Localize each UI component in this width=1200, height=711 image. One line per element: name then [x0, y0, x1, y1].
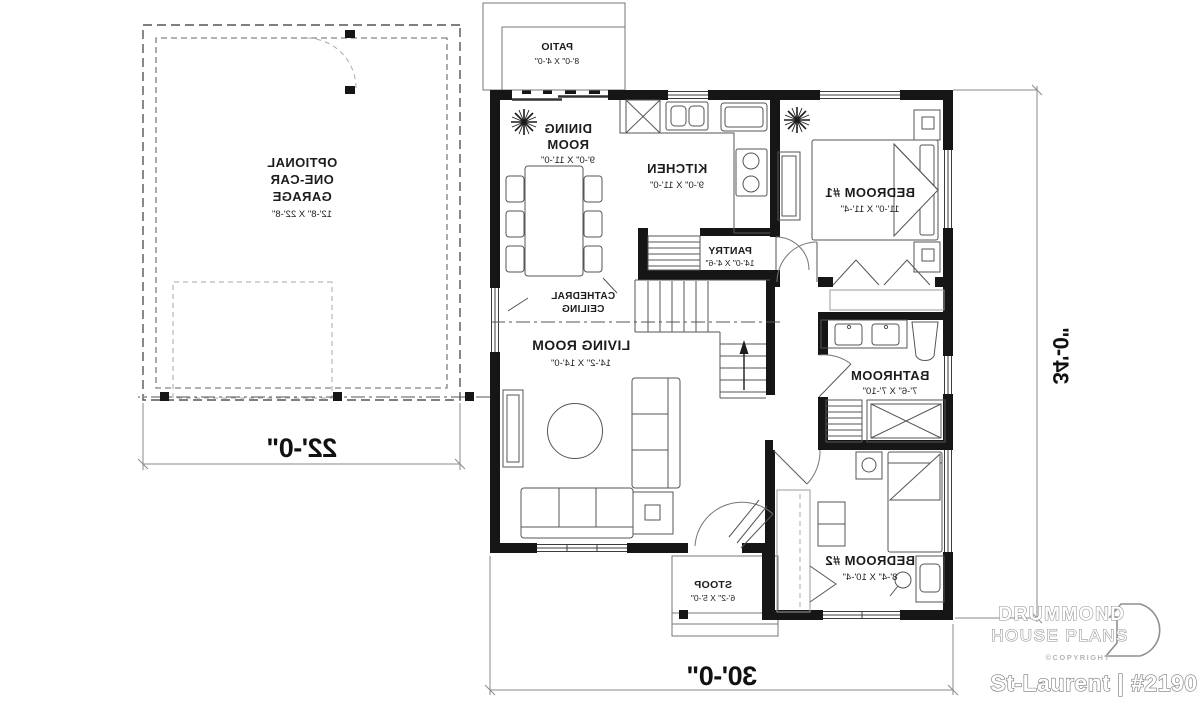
floor-plan-mirrored-group: PATIO 8'-0" X 4'-0" DINING ROOM 9'-0" X …	[138, 3, 1073, 695]
window	[945, 450, 952, 552]
plant-icon	[784, 107, 810, 133]
dining-chair	[584, 211, 602, 237]
plant-icon	[511, 109, 537, 135]
bedroom2-dims: 8'-4" X 10'-4"	[843, 572, 898, 583]
front-entry-door	[695, 502, 773, 548]
bedroom1-door	[777, 242, 817, 282]
nightstand	[914, 110, 940, 140]
patio-label: PATIO	[541, 41, 573, 53]
bed-2	[888, 452, 942, 552]
dresser	[778, 152, 800, 220]
cathedral-note-line2: CEILING	[562, 304, 605, 315]
bedroom2-door	[774, 450, 820, 484]
bathroom-dims: 7'-6" X 7'-10"	[863, 386, 918, 397]
dining-chair	[506, 246, 524, 272]
garage-label-line3: GARAGE	[272, 189, 331, 204]
floor-plan-sheet: PATIO 8'-0" X 4'-0" DINING ROOM 9'-0" X …	[0, 0, 1200, 711]
bathroom-vanity	[821, 320, 907, 348]
stairs	[635, 280, 770, 398]
nightstand	[914, 242, 940, 272]
porch-post	[333, 392, 342, 401]
nightstand	[856, 452, 882, 479]
pantry-label: PANTRY	[708, 245, 752, 257]
cathedral-note-line1: CATHEDRAL	[551, 291, 615, 302]
kitchen-sink	[666, 102, 708, 130]
stove	[736, 149, 767, 196]
window	[823, 612, 900, 619]
dining-label-line1: DINING	[544, 121, 592, 136]
garage-label-line1: OPTIONAL	[267, 155, 337, 170]
dining-chair	[506, 211, 524, 237]
bedroom2-furniture	[777, 452, 944, 612]
pantry-dims: 14'-0" X 4'-6"	[706, 258, 755, 268]
title-block: DRUMMOND HOUSE PLANS ©COPYRIGHT St-Laure…	[990, 604, 1197, 696]
linen-closet	[826, 400, 862, 442]
living-furniture	[503, 378, 680, 538]
closet-bifold-doors	[830, 260, 944, 310]
dimension-garage-width: 22'-0"	[267, 433, 337, 463]
dresser	[818, 502, 845, 546]
dining-chair	[584, 246, 602, 272]
stoop-post	[679, 610, 688, 619]
living-label: LIVING ROOM	[532, 337, 631, 353]
toilet	[912, 322, 938, 361]
kitchen-label: KITCHEN	[647, 161, 708, 176]
stoop-label: STOOP	[694, 579, 732, 591]
shower	[867, 400, 945, 442]
window	[945, 150, 952, 228]
bedroom1-dims: 11'-0" X 11'-4"	[841, 204, 900, 215]
side-table	[633, 492, 673, 534]
living-dims: 14'-2" X 14'-0"	[551, 358, 611, 369]
patio-dims: 8'-0" X 4'-0"	[535, 56, 579, 66]
bathroom-label: BATHROOM	[851, 368, 930, 383]
bedroom1-label: BEDROOM #1	[825, 185, 915, 200]
drummond-logo: DRUMMOND HOUSE PLANS ©COPYRIGHT	[991, 604, 1159, 662]
windows	[492, 92, 952, 619]
tv-console	[503, 390, 523, 467]
stairs-up-arrow-icon	[740, 340, 749, 390]
garage-door-swing	[306, 38, 356, 88]
kitchen-dims: 9'-0" X 11'-0"	[650, 180, 704, 191]
plan-title: St-Laurent | #2190	[990, 670, 1197, 696]
dining-label-line2: ROOM	[547, 137, 589, 152]
brand-line2: HOUSE PLANS	[991, 626, 1128, 645]
coffee-table	[548, 404, 603, 459]
bedroom2-label: BEDROOM #2	[825, 553, 915, 568]
dining-dims: 9'-0" X 11'-0"	[541, 155, 595, 166]
window	[492, 288, 499, 352]
window	[668, 92, 708, 99]
porch-post	[465, 392, 474, 401]
sectional-sofa	[521, 378, 680, 538]
dimension-house-depth: 34'-0"	[1048, 328, 1073, 385]
window	[945, 356, 952, 394]
dishwasher	[626, 100, 660, 133]
dining-furniture	[506, 166, 602, 276]
pantry-shelves	[648, 236, 700, 270]
stoop-dims: 6'-2" X 5'-0"	[691, 593, 735, 603]
window	[820, 92, 900, 99]
exterior-walls	[490, 90, 953, 620]
sliding-patio-door	[512, 91, 608, 100]
dimension-house-width: 30'-0"	[687, 661, 757, 691]
dining-chair	[584, 176, 602, 202]
bathroom-door	[819, 355, 851, 397]
dining-table	[525, 166, 583, 276]
garage-dims: 12'-8" X 22'-8"	[272, 209, 332, 220]
copyright-text: ©COPYRIGHT	[1045, 653, 1110, 662]
window	[537, 545, 627, 552]
floor-plan-canvas: PATIO 8'-0" X 4'-0" DINING ROOM 9'-0" X …	[0, 0, 1200, 711]
porch-post	[160, 392, 169, 401]
brand-line1: DRUMMOND	[998, 604, 1125, 625]
refrigerator	[721, 103, 767, 131]
garage-label-line2: ONE-CAR	[270, 172, 334, 187]
dining-chair	[506, 176, 524, 202]
bedroom2-closet	[777, 490, 836, 612]
